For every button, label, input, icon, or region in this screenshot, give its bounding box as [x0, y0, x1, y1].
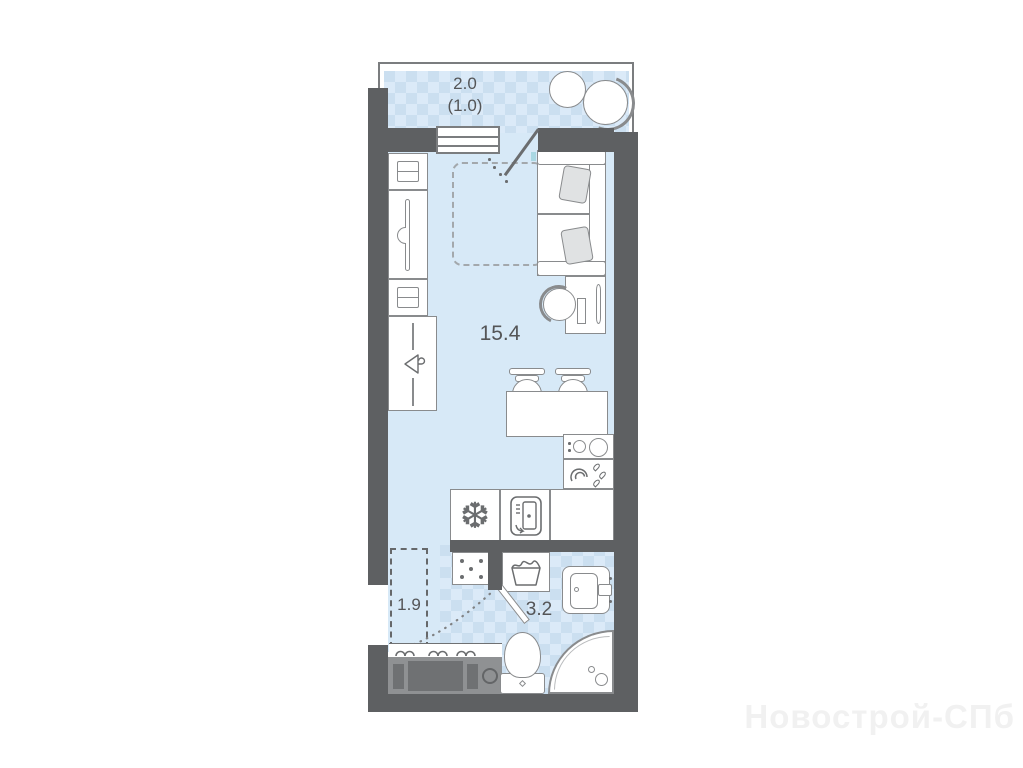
burner-small [573, 440, 586, 453]
wall-room-bathroom [450, 540, 614, 552]
door-swing-dot [493, 166, 496, 169]
floor-plan-canvas: 2.0 (1.0) 15.4 [0, 0, 1023, 768]
hob-unit [563, 434, 614, 459]
snowflake-icon: ❆ [451, 491, 499, 541]
pouf-dot [479, 559, 483, 563]
pouf-dot [460, 559, 464, 563]
nightstand-top [388, 153, 428, 190]
toilet-bowl [504, 632, 541, 678]
pouf-dot [460, 575, 464, 579]
wall-bathroom-stub [488, 552, 502, 590]
faucet-icon [566, 462, 592, 486]
pouf-dot [479, 575, 483, 579]
counter-corner [550, 489, 614, 542]
entry-closet [388, 643, 502, 694]
desk-monitor [577, 298, 586, 324]
balcony-window-sill [436, 126, 500, 154]
hob-knob-dot [568, 442, 571, 445]
washing-machine [502, 552, 550, 592]
hob-knob-dot [568, 449, 571, 452]
balcony-reduced-area-label: (1.0) [415, 97, 515, 116]
tap-dot [609, 577, 612, 580]
tap-dot [609, 600, 612, 603]
wall-bottom [368, 694, 638, 712]
sofa-seat-divider [538, 213, 590, 215]
door-swing-dot [499, 173, 502, 176]
dishwasher [500, 489, 550, 542]
closet-side-panel [467, 664, 478, 689]
room-area-label: 15.4 [460, 322, 540, 345]
tv-stand-icon [397, 227, 406, 244]
hallway-area-label: 1.9 [388, 596, 430, 615]
wall-left-upper [368, 88, 388, 585]
kitchen-sink-unit [563, 459, 614, 489]
stool-back-bar [509, 368, 545, 375]
watermark: Новострой-СПб [615, 698, 1015, 736]
coat-hooks-icon [389, 643, 502, 658]
wall-under-balcony-left [378, 128, 438, 152]
closet-body [388, 657, 502, 694]
sink-drain [574, 587, 579, 592]
hanger-icon [400, 350, 426, 378]
hallway-pouf [452, 552, 490, 585]
balcony-area-label: 2.0 [415, 75, 515, 94]
dishwasher-icon [508, 494, 544, 538]
fridge: ❆ [450, 489, 500, 542]
balcony-chair [583, 80, 628, 125]
sofa-pillow [558, 165, 592, 204]
closet-box [408, 661, 463, 691]
burner-large [589, 438, 608, 457]
closet-side-panel [393, 664, 404, 689]
fold-out-bed-zone [452, 162, 544, 266]
drawer-line [397, 297, 419, 298]
tv-console [388, 190, 428, 279]
laundry-icon [507, 557, 545, 588]
door-swing-dot [488, 158, 491, 161]
door-swing-dot [505, 180, 508, 183]
window-sill-line [438, 145, 498, 147]
bar-table [506, 391, 608, 437]
bathroom-area-label: 3.2 [514, 600, 564, 621]
sofa-armrest-top [537, 150, 606, 165]
wardrobe [388, 316, 437, 411]
drawer-line [397, 171, 419, 172]
sink-tap [598, 584, 612, 596]
closet-knob [482, 668, 498, 684]
nightstand-bottom [388, 279, 428, 316]
stool-back-bar [555, 368, 591, 375]
sofa-pillow [560, 226, 594, 265]
desk-chair [543, 288, 576, 321]
wall-right [614, 132, 638, 712]
window-sill-line [438, 136, 498, 138]
shower-handle [595, 673, 608, 686]
pouf-dot [469, 567, 473, 571]
desk-lamp [596, 284, 601, 324]
wall-under-balcony-right [538, 128, 614, 152]
glazing-accent [531, 152, 536, 161]
shower-drain [588, 666, 595, 673]
